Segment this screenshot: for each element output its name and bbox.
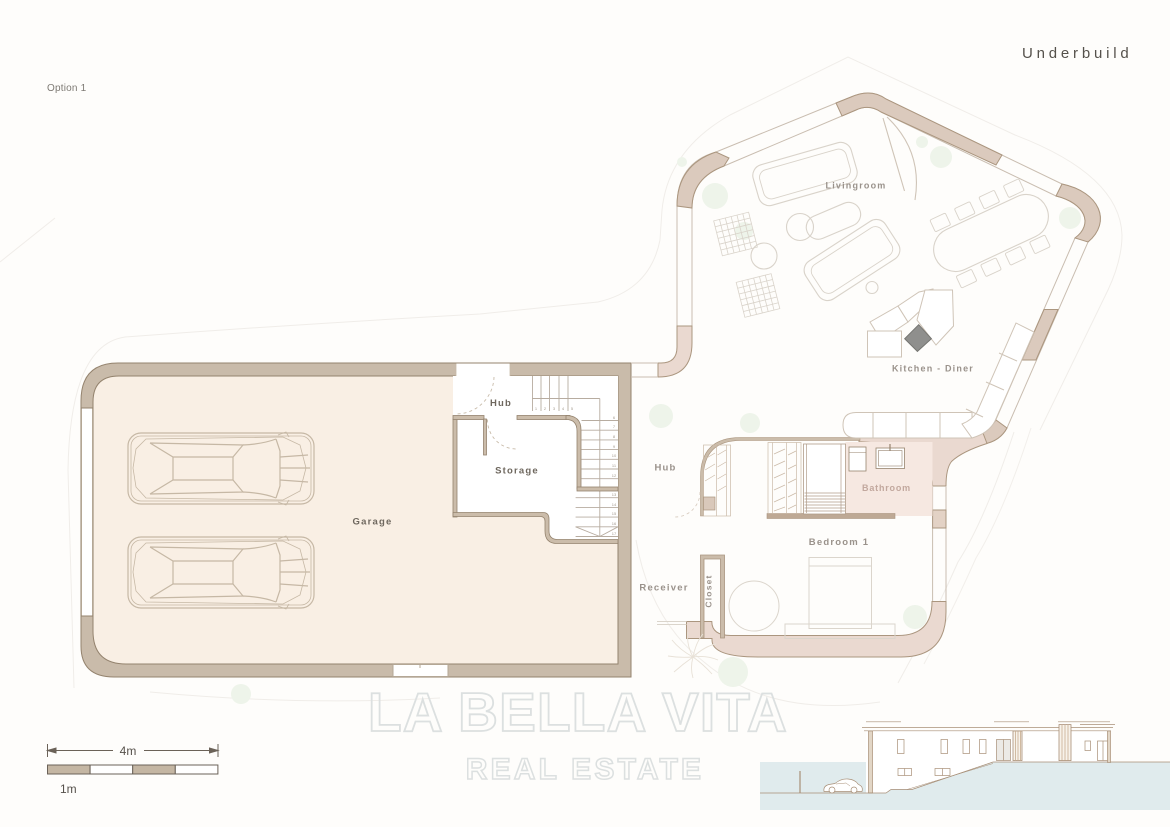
svg-text:Bedroom 1: Bedroom 1 — [809, 537, 869, 548]
svg-text:15: 15 — [612, 511, 617, 516]
svg-text:Kitchen - Diner: Kitchen - Diner — [892, 364, 974, 374]
svg-text:Storage: Storage — [495, 466, 539, 477]
svg-text:Option 1: Option 1 — [47, 83, 87, 94]
svg-text:Bathroom: Bathroom — [862, 483, 911, 493]
svg-text:12: 12 — [612, 473, 617, 478]
svg-text:LA BELLA VITA: LA BELLA VITA — [368, 681, 788, 743]
svg-text:Hub: Hub — [490, 398, 512, 409]
svg-text:Livingroom: Livingroom — [826, 181, 887, 191]
svg-text:10: 10 — [612, 453, 617, 458]
svg-text:Receiver: Receiver — [639, 583, 688, 594]
svg-text:14: 14 — [612, 502, 617, 507]
svg-text:Underbuild: Underbuild — [1022, 45, 1133, 62]
svg-text:16: 16 — [612, 521, 617, 526]
svg-text:17: 17 — [612, 531, 617, 536]
svg-text:1m: 1m — [60, 782, 77, 796]
svg-text:4m: 4m — [120, 744, 137, 758]
svg-text:13: 13 — [612, 492, 617, 497]
svg-text:REAL ESTATE: REAL ESTATE — [466, 753, 705, 786]
svg-text:Garage: Garage — [353, 517, 393, 528]
svg-text:Closet: Closet — [704, 574, 714, 607]
svg-text:Hub: Hub — [654, 463, 676, 474]
